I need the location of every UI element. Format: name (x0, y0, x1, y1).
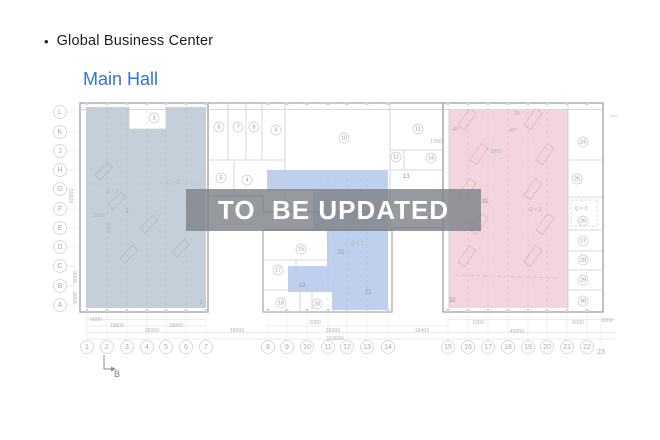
room-label: 14 (428, 156, 434, 162)
column-marker (205, 102, 208, 105)
grid-row-label: H (57, 167, 62, 174)
column-marker (447, 102, 450, 105)
plan-annotation: 2000 (93, 213, 105, 219)
grid-row-label: K (58, 129, 63, 136)
plan-annotation: Q = 3 (529, 207, 542, 213)
grid-col-label: 23 (597, 349, 605, 356)
room-label: 31 (481, 198, 489, 205)
wall (129, 107, 166, 129)
plan-annotation: Q = 3 (575, 206, 588, 212)
room-label: 17 (275, 268, 281, 274)
column-marker (586, 102, 589, 105)
grid-col-label: 9 (285, 344, 289, 351)
column-marker (205, 309, 208, 312)
room-label: 3 (152, 116, 155, 122)
plan-annotation: 1000 (430, 139, 442, 145)
column-marker (165, 102, 168, 105)
column-marker (86, 102, 89, 105)
grid-row-label: F (58, 206, 62, 213)
page-title-row: • Global Business Center (44, 33, 213, 49)
dimension-label: 6000 (90, 317, 102, 323)
grid-col-label: 13 (363, 344, 371, 351)
section-marker-label: B (114, 369, 120, 379)
room-label: 29 (580, 278, 586, 284)
column-marker (467, 309, 470, 312)
grid-col-label: 16 (464, 344, 472, 351)
room-label: 30 (580, 299, 586, 305)
grid-row-label: A (58, 302, 63, 309)
column-marker (126, 102, 129, 105)
room-label: 10 (341, 136, 347, 142)
grid-col-label: 12 (343, 344, 351, 351)
plan-annotation: Q + 3 (167, 180, 180, 186)
room-label: 18 (278, 301, 284, 307)
grid-col-label: 4 (145, 344, 149, 351)
plan-annotation: 1800 (490, 149, 502, 155)
column-marker (126, 309, 129, 312)
column-marker (106, 102, 109, 105)
column-marker (346, 309, 349, 312)
column-marker (306, 102, 309, 105)
column-marker (487, 309, 490, 312)
room-label: 22 (364, 289, 372, 296)
column-marker (507, 309, 510, 312)
equipment-mark (290, 316, 388, 318)
dimension-label: 2000 (309, 320, 321, 326)
room-label: 1 (199, 300, 202, 306)
column-marker (566, 102, 569, 105)
dimension-label: 18000 (230, 328, 245, 334)
column-marker (467, 102, 470, 105)
plan-annotation: 2000 (107, 222, 113, 234)
room-label: 21 (337, 249, 345, 256)
grid-row-label: J (58, 148, 62, 155)
grid-col-label: 1 (85, 344, 89, 351)
dimension-label: 45000 (510, 329, 525, 335)
room-label: 8 (252, 125, 255, 131)
room-label: 5 (219, 176, 222, 182)
column-marker (546, 102, 549, 105)
column-marker (586, 309, 589, 312)
grid-col-label: 3 (125, 344, 129, 351)
dimension-label: 18000 (110, 323, 125, 329)
column-marker (527, 309, 530, 312)
grid-col-label: 19 (524, 344, 532, 351)
room-label: 28 (580, 258, 586, 264)
slide: • Global Business Center Main Hall LKJHG… (0, 0, 660, 440)
room-label: 4 (245, 178, 248, 184)
column-marker (366, 309, 369, 312)
column-marker (487, 102, 490, 105)
page-title: Global Business Center (57, 33, 214, 49)
dimension-label: 6000 (73, 292, 79, 304)
dimension-label: 3000 (601, 318, 613, 324)
room-label: 13 (402, 173, 410, 180)
column-marker (286, 309, 289, 312)
column-marker (106, 309, 109, 312)
dimension-label: 153600 (326, 336, 343, 342)
grid-row-label: L (58, 109, 62, 116)
column-marker (165, 309, 168, 312)
column-marker (286, 102, 289, 105)
grid-col-label: 6 (184, 344, 188, 351)
grid-col-label: 8 (266, 344, 270, 351)
room-label: 32 (448, 297, 456, 304)
column-marker (507, 102, 510, 105)
bullet-icon: • (44, 35, 49, 48)
dimension-label: 6000 (73, 271, 79, 283)
grid-row-label: D (57, 244, 62, 251)
column-marker (387, 309, 390, 312)
column-marker (447, 309, 450, 312)
dimension-label: 60000 (69, 189, 75, 204)
grid-col-label: 15 (444, 344, 452, 351)
column-marker (185, 102, 188, 105)
dimension-label: 18000 (169, 323, 184, 329)
grid-row-label: E (58, 225, 63, 232)
plan-annotation: 23 (514, 111, 520, 117)
grid-row-label: G (57, 186, 62, 193)
dimension-label: 1000 (472, 320, 484, 326)
column-marker (366, 102, 369, 105)
grid-col-label: 7 (204, 344, 208, 351)
grid-col-label: 20 (543, 344, 551, 351)
column-marker (267, 102, 270, 105)
dimension-label: 6000 (572, 320, 584, 326)
room-label: 26 (580, 219, 586, 225)
room-label: 24 (580, 140, 586, 146)
room-label: 9 (274, 128, 277, 134)
grid-row-label: B (58, 283, 63, 290)
room-label: 6 (217, 125, 220, 131)
column-marker (86, 309, 89, 312)
column-marker (146, 102, 149, 105)
grid-col-label: 5 (164, 344, 168, 351)
column-marker (306, 309, 309, 312)
plan-annotation: Q + 3 (106, 189, 119, 195)
plan-annotation: 45° (509, 128, 517, 134)
section-marker-line (104, 355, 111, 369)
column-marker (346, 102, 349, 105)
plan-annotation: Q = 3 (351, 241, 364, 247)
column-marker (185, 309, 188, 312)
grid-row-label: C (57, 263, 62, 270)
dimension-label: 36000 (326, 328, 341, 334)
grid-col-label: 14 (384, 344, 392, 351)
column-marker (146, 309, 149, 312)
dimension-label: 36000 (145, 328, 160, 334)
grid-col-label: 21 (563, 344, 571, 351)
dimension-label: 18400 (415, 328, 430, 334)
room-label: 11 (415, 127, 421, 133)
grid-col-label: 10 (303, 344, 311, 351)
room-label: 20 (314, 302, 320, 308)
room-label: 12 (393, 155, 399, 161)
column-marker (566, 309, 569, 312)
room-label: 25 (574, 177, 580, 183)
grid-col-label: 18 (504, 344, 512, 351)
grid-col-label: 11 (324, 344, 331, 351)
room-label: 2 (125, 209, 128, 215)
grid-col-label: 17 (484, 344, 492, 351)
grid-col-label: 2 (105, 344, 109, 351)
column-marker (527, 102, 530, 105)
room-label: 19 (298, 282, 306, 289)
plan-annotation: 45° (452, 127, 460, 133)
column-marker (546, 309, 549, 312)
column-marker (327, 102, 330, 105)
column-marker (267, 309, 270, 312)
column-marker (387, 102, 390, 105)
column-marker (327, 309, 330, 312)
room-label: 7 (236, 125, 239, 131)
to-be-updated-watermark: TO BE UPDATED (186, 189, 481, 231)
room-label: 27 (580, 239, 586, 245)
grid-col-label: 22 (583, 344, 591, 351)
room-label: 15 (298, 247, 304, 253)
hall-title-link[interactable]: Main Hall (83, 69, 158, 90)
